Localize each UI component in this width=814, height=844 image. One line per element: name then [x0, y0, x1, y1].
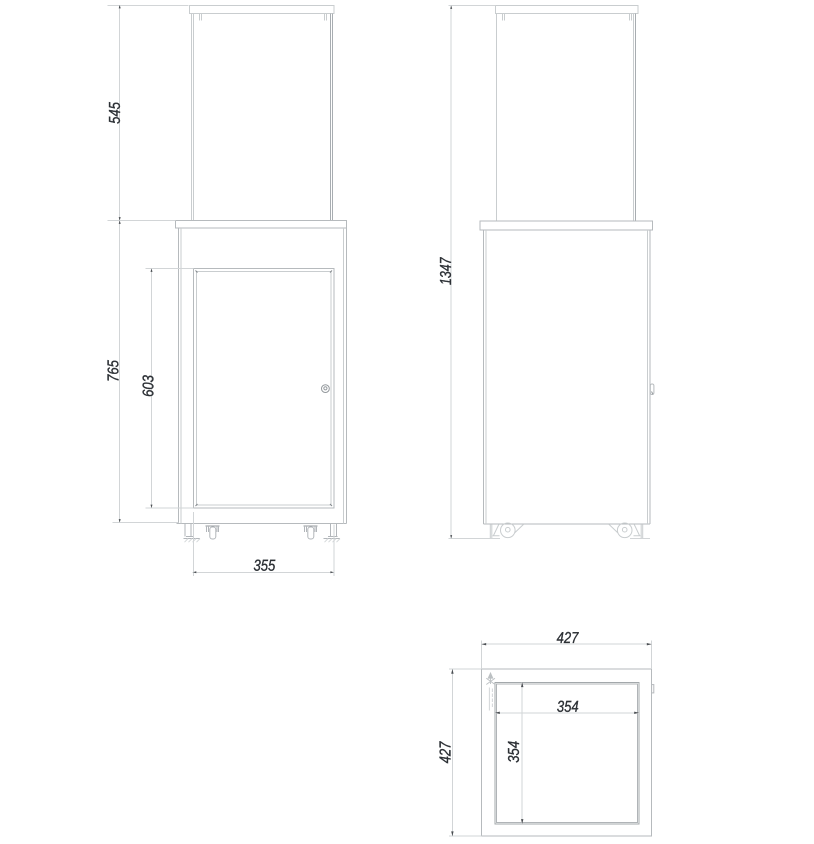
svg-text:545: 545 — [107, 102, 124, 124]
svg-text:355: 355 — [253, 558, 275, 575]
svg-text:354: 354 — [557, 699, 579, 716]
svg-text:765: 765 — [106, 360, 123, 382]
svg-text:603: 603 — [141, 375, 158, 397]
svg-text:1347: 1347 — [438, 257, 455, 285]
svg-text:354: 354 — [506, 741, 523, 763]
svg-text:427: 427 — [557, 630, 580, 647]
svg-text:427: 427 — [438, 741, 455, 764]
